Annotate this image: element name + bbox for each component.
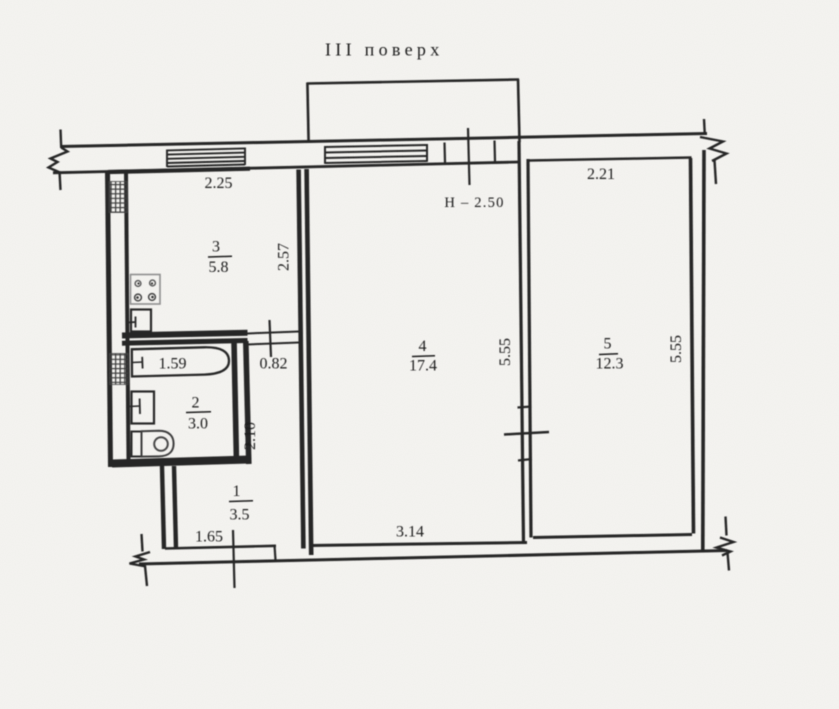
svg-text:ІІІ поверх: ІІІ поверх [325,40,444,60]
svg-text:3.0: 3.0 [188,416,208,433]
svg-text:12.3: 12.3 [596,356,624,373]
svg-text:0.82: 0.82 [260,356,288,373]
svg-text:1.59: 1.59 [159,356,187,373]
svg-text:2.25: 2.25 [205,175,233,192]
svg-text:2.21: 2.21 [587,166,615,183]
svg-text:H – 2.50: H – 2.50 [444,195,504,211]
svg-text:2.57: 2.57 [276,243,293,271]
svg-text:5.55: 5.55 [497,338,514,366]
svg-text:1.65: 1.65 [195,529,223,546]
svg-text:4: 4 [419,338,427,355]
svg-text:5.55: 5.55 [668,335,685,363]
svg-text:2.10: 2.10 [242,422,259,450]
svg-text:5.8: 5.8 [209,259,229,276]
svg-text:17.4: 17.4 [409,358,437,375]
svg-text:1: 1 [233,483,241,500]
svg-text:3.5: 3.5 [230,507,250,524]
svg-text:2: 2 [192,395,200,412]
svg-text:5: 5 [604,336,612,353]
svg-text:3.14: 3.14 [396,524,424,541]
svg-text:3: 3 [212,239,220,256]
